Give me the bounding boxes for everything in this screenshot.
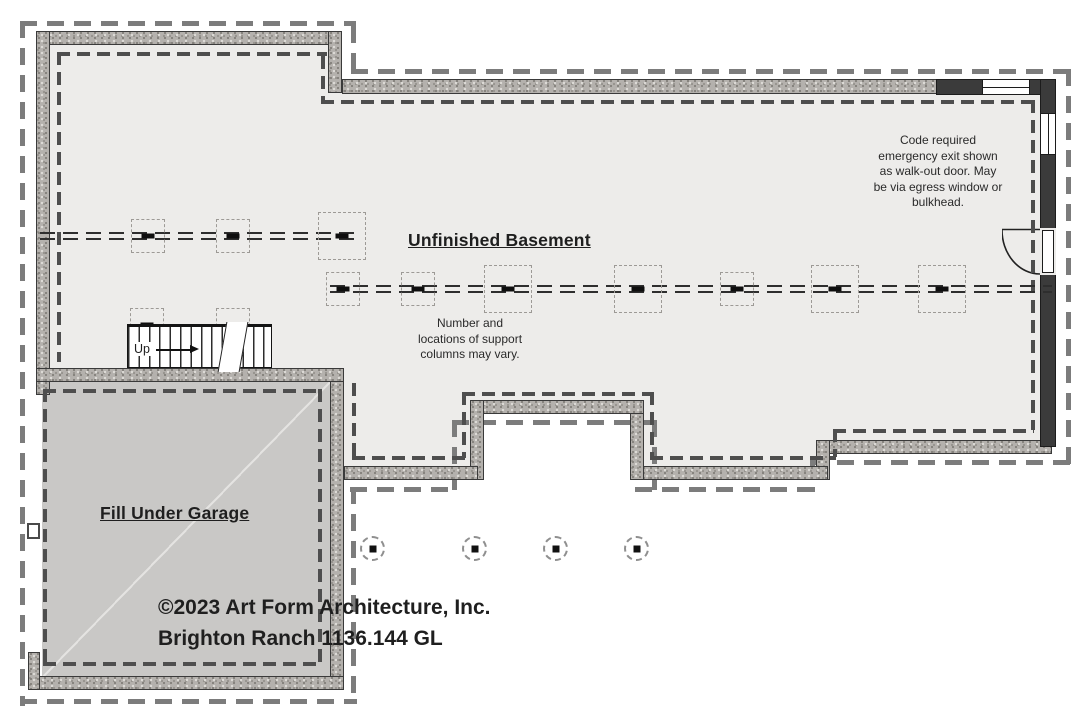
room-label: Unfinished Basement (408, 230, 591, 251)
porch-pier (624, 536, 649, 561)
slab-dash-line (462, 392, 653, 396)
slab-dash-line (57, 52, 61, 362)
slab-dash-line (833, 429, 837, 457)
foundation-wall-notch-top (470, 400, 644, 414)
slab-dash-line (650, 392, 654, 458)
copyright-text: ©2023 Art Form Architecture, Inc. Bright… (158, 592, 491, 654)
slab-dash-line (352, 383, 356, 458)
support-column (318, 212, 366, 260)
support-column (216, 219, 250, 253)
garage-label: Fill Under Garage (100, 503, 249, 524)
support-column (918, 265, 966, 313)
copyright-line1: ©2023 Art Form Architecture, Inc. (158, 592, 491, 623)
beam-line-upper (40, 232, 362, 240)
foundation-wall-top-right (342, 79, 938, 94)
garage-top-wall (36, 368, 344, 382)
basement-floor-area (826, 398, 1042, 444)
slab-dash-line (57, 52, 327, 56)
basement-floor-plan: Up Unfinished Basement Fill Under Garage… (0, 0, 1088, 714)
garage-bottom-left-stub (28, 652, 40, 690)
foundation-wall-bottom-right (824, 440, 1052, 454)
columns-note: Number and locations of support columns … (380, 316, 560, 363)
slab-dash-line (650, 456, 836, 460)
porch-pier (462, 536, 487, 561)
slab-dash-line (321, 100, 1034, 104)
stairs-direction-arrow (156, 349, 190, 351)
foundation-wall-left (36, 31, 50, 395)
door-leaf (1042, 230, 1054, 273)
door-swing-arc (1002, 228, 1042, 276)
foundation-wall-top-left (36, 31, 342, 45)
support-column (720, 272, 754, 306)
support-column (401, 272, 435, 306)
slab-dash-line (321, 56, 325, 102)
footing-line (1066, 69, 1071, 467)
garage-bottom-wall (28, 676, 344, 690)
footing-line (351, 69, 1072, 74)
footing-line (350, 487, 458, 492)
porch-pier (543, 536, 568, 561)
support-column (131, 219, 165, 253)
slab-dash-line (43, 662, 321, 666)
foundation-wall-bottom-mid (641, 466, 828, 480)
foundation-wall-bottom-left-mid (344, 466, 478, 480)
support-column (484, 265, 532, 313)
window (982, 79, 1030, 95)
footing-line (20, 21, 356, 26)
footing-line (810, 460, 1078, 465)
slab-dash-line (462, 392, 466, 458)
copyright-line2: Brighton Ranch 1136.144 GL (158, 623, 491, 654)
footing-line (635, 487, 816, 492)
footing-line (20, 21, 25, 706)
slab-dash-line (833, 429, 1034, 433)
foundation-wall-step (328, 31, 342, 93)
slab-dash-line (43, 389, 47, 665)
support-column (811, 265, 859, 313)
support-column (614, 265, 662, 313)
footing-line (351, 26, 356, 74)
stairs-up-label: Up (132, 342, 152, 356)
footing-pier (27, 523, 40, 539)
slab-dash-line (43, 389, 321, 393)
porch-pier (360, 536, 385, 561)
slab-dash-line (352, 456, 465, 460)
support-column (326, 272, 360, 306)
footing-line (20, 699, 357, 704)
egress-note: Code required emergency exit shown as wa… (833, 133, 1043, 211)
